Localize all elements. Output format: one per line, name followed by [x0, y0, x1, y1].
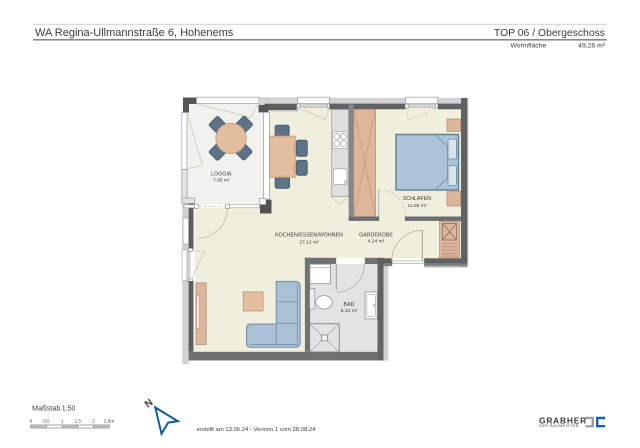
svg-text:4.24 m²: 4.24 m² — [368, 239, 385, 245]
svg-text:11.80 m²: 11.80 m² — [408, 203, 427, 209]
svg-text:Wohnfläche: Wohnfläche — [511, 43, 547, 50]
svg-text:7.85 m²: 7.85 m² — [213, 178, 230, 184]
svg-text:27.12 m²: 27.12 m² — [299, 240, 319, 246]
svg-text:2: 2 — [92, 418, 95, 423]
svg-text:6.10 m²: 6.10 m² — [341, 308, 358, 314]
svg-text:1,5: 1,5 — [75, 418, 82, 423]
svg-text:2,5m: 2,5m — [104, 418, 114, 423]
svg-text:1: 1 — [61, 418, 64, 423]
svg-text:N: N — [143, 397, 155, 410]
svg-text:DER BAUMEISTER: DER BAUMEISTER — [539, 424, 579, 428]
svg-text:49,26 m²: 49,26 m² — [578, 43, 606, 50]
svg-text:KOCHEN/ESSEN/WOHNEN: KOCHEN/ESSEN/WOHNEN — [275, 233, 343, 239]
svg-text:erstellt am 13.06.24 - Version: erstellt am 13.06.24 - Version 1 vom 28.… — [197, 427, 317, 433]
svg-text:WA Regina-Ullmannstraße 6, Hoh: WA Regina-Ullmannstraße 6, Hohenems — [35, 27, 234, 39]
svg-text:1:50: 1:50 — [62, 405, 76, 412]
svg-text:GARDEROBE: GARDEROBE — [359, 233, 393, 239]
svg-text:0: 0 — [30, 418, 33, 423]
svg-text:Maßstab: Maßstab — [32, 403, 60, 412]
svg-text:0,5: 0,5 — [43, 418, 50, 423]
svg-text:LOGGIA: LOGGIA — [211, 172, 232, 178]
svg-text:SCHLAFEN: SCHLAFEN — [403, 196, 431, 202]
svg-text:TOP 06 / Obergeschoss: TOP 06 / Obergeschoss — [494, 28, 605, 39]
svg-text:BAD: BAD — [344, 302, 355, 308]
